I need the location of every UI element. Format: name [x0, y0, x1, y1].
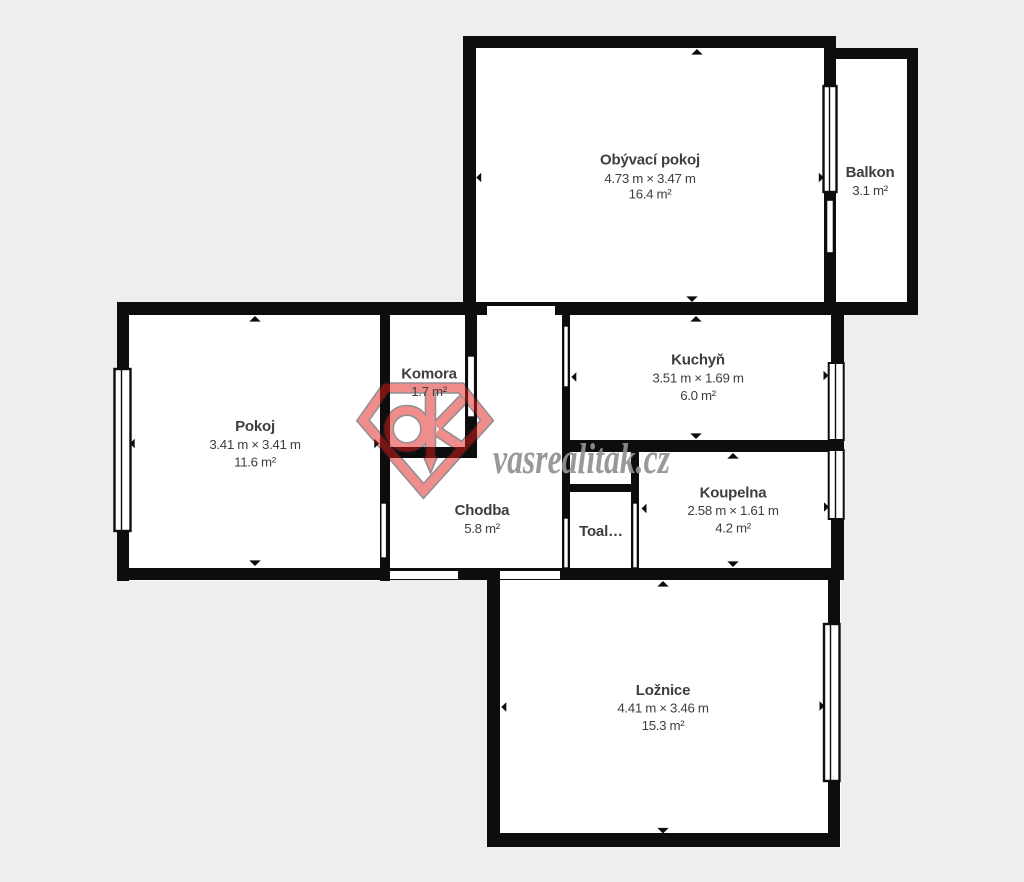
svg-text:6.0 m²: 6.0 m² [680, 388, 717, 403]
svg-text:4.2 m²: 4.2 m² [715, 521, 752, 536]
svg-text:Obývací pokoj: Obývací pokoj [600, 152, 700, 169]
svg-text:1.7 m²: 1.7 m² [411, 384, 448, 399]
svg-text:Koupelna: Koupelna [700, 485, 768, 502]
svg-text:11.6 m²: 11.6 m² [234, 455, 277, 470]
svg-text:16.4 m²: 16.4 m² [629, 187, 673, 202]
svg-text:Ložnice: Ložnice [636, 682, 690, 699]
svg-text:vasrealitak.cz: vasrealitak.cz [493, 436, 670, 483]
svg-text:Pokoj: Pokoj [235, 418, 275, 435]
svg-text:15.3 m²: 15.3 m² [642, 718, 686, 733]
svg-text:4.73 m × 3.47 m: 4.73 m × 3.47 m [604, 171, 695, 186]
svg-text:Komora: Komora [401, 366, 457, 383]
svg-text:4.41 m × 3.46 m: 4.41 m × 3.46 m [617, 701, 708, 716]
svg-text:2.58 m × 1.61 m: 2.58 m × 1.61 m [687, 503, 778, 518]
svg-text:Chodba: Chodba [455, 502, 510, 519]
svg-text:Balkon: Balkon [846, 164, 895, 181]
svg-text:3.51 m × 1.69 m: 3.51 m × 1.69 m [652, 371, 743, 386]
svg-text:3.41 m × 3.41 m: 3.41 m × 3.41 m [209, 437, 300, 452]
svg-text:3.1 m²: 3.1 m² [852, 183, 889, 198]
svg-text:Toal…: Toal… [579, 523, 623, 540]
svg-text:5.8 m²: 5.8 m² [464, 521, 501, 536]
svg-text:Kuchyň: Kuchyň [671, 352, 725, 369]
